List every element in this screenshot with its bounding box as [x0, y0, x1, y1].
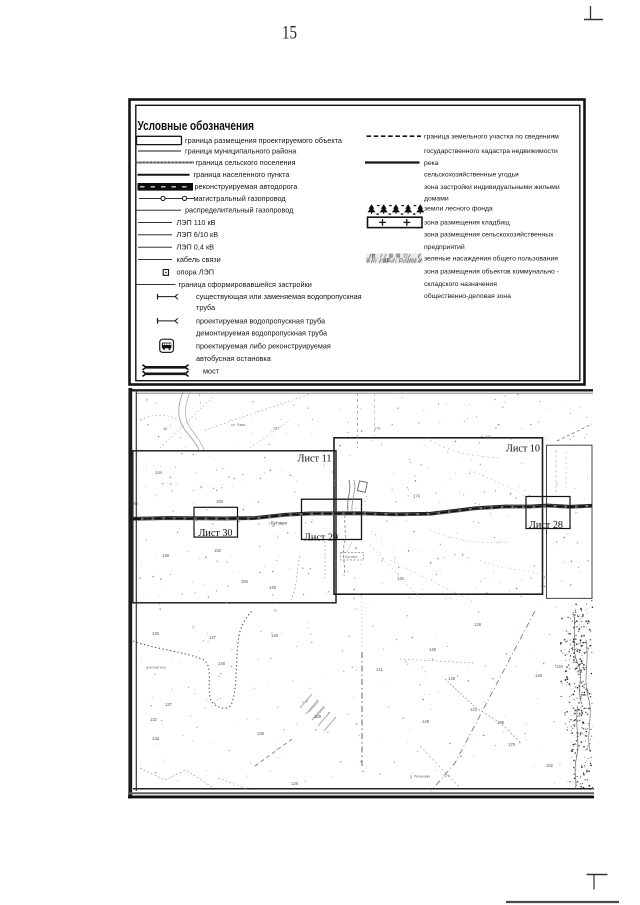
svg-text:зона размещения кладбищ: зона размещения кладбищ	[424, 219, 510, 227]
svg-text:176: 176	[374, 427, 380, 431]
svg-text:187: 187	[273, 427, 279, 431]
svg-text:автобусная остановка: автобусная остановка	[196, 354, 272, 363]
svg-text:147: 147	[209, 635, 217, 640]
svg-text:Лист 28: Лист 28	[529, 520, 563, 531]
svg-text:134: 134	[152, 736, 160, 741]
svg-text:150: 150	[241, 579, 249, 584]
svg-text:, ': , '	[584, 434, 587, 440]
svg-text:ЛЭП 110 кВ: ЛЭП 110 кВ	[177, 218, 216, 227]
svg-text:домами: домами	[424, 196, 449, 203]
svg-text:магистральный газопровод: магистральный газопровод	[194, 194, 287, 203]
svg-text:красный Бор: красный Бор	[146, 666, 166, 670]
svg-text:141: 141	[376, 667, 384, 672]
svg-text:зона застройки индивидуальными: зона застройки индивидуальными жилыми	[424, 183, 560, 191]
svg-text:граница населенного пункта: граница населенного пункта	[194, 170, 291, 179]
svg-text:зона размещения объектов комму: зона размещения объектов коммунально -	[424, 267, 559, 275]
svg-text:зона размещения сельскохозяйст: зона размещения сельскохозяйственных	[424, 231, 554, 239]
svg-text:15: 15	[282, 23, 297, 44]
svg-text:проектируемая либо реконструир: проектируемая либо реконструируемая	[196, 341, 331, 350]
svg-text:граница сформировавшейся застр: граница сформировавшейся застройки	[179, 280, 312, 289]
svg-text:144: 144	[470, 707, 478, 712]
svg-text:распределительный газопровод: распределительный газопровод	[185, 206, 294, 215]
svg-text:174: 174	[413, 494, 421, 499]
svg-text:137: 137	[165, 702, 173, 707]
svg-text:д. Ретиновка: д. Ретиновка	[410, 775, 430, 779]
svg-text:171: 171	[444, 774, 450, 778]
svg-text:река: река	[424, 160, 439, 167]
svg-text:128: 128	[314, 714, 322, 719]
svg-text:150: 150	[214, 548, 222, 553]
svg-text:142: 142	[397, 576, 405, 581]
svg-text:с.Бутовка: с.Бутовка	[343, 555, 357, 559]
svg-text:48: 48	[163, 427, 167, 431]
svg-text:опора ЛЭП: опора ЛЭП	[177, 267, 215, 276]
svg-text:132: 132	[150, 717, 158, 722]
svg-text:граница размещения проектируем: граница размещения проектируемого объект…	[185, 136, 343, 145]
svg-text:ЛЭП 6/10 кВ: ЛЭП 6/10 кВ	[177, 230, 219, 239]
svg-text:Лист 10: Лист 10	[506, 443, 540, 454]
svg-text:·⋮: ·⋮	[143, 464, 148, 469]
svg-text:158: 158	[485, 435, 491, 439]
svg-text:общественно-деловая зона: общественно-деловая зона	[424, 292, 511, 300]
svg-text:труба: труба	[196, 303, 216, 312]
svg-text:земли лесного фонда: земли лесного фонда	[424, 205, 493, 212]
svg-text:149: 149	[162, 553, 170, 558]
svg-text:143: 143	[142, 516, 150, 521]
svg-text:125: 125	[291, 781, 299, 786]
svg-text:государственного кадастра недв: государственного кадастра недвижимости	[424, 148, 558, 155]
svg-text:проектируемая водопропускная т: проектируемая водопропускная труба	[196, 316, 326, 325]
svg-text:граница земельного участка по: граница земельного участка по сведениям	[424, 134, 559, 141]
svg-text:реконструируемая автодорога: реконструируемая автодорога	[195, 182, 299, 191]
svg-text:146: 146	[535, 673, 543, 678]
svg-text:140: 140	[556, 664, 564, 669]
svg-text:граница муниципального района: граница муниципального района	[185, 146, 297, 155]
svg-text:ск. Рава: ск. Рава	[231, 423, 246, 427]
svg-text:существующая или заменяемая во: существующая или заменяемая водопропускн…	[196, 292, 362, 301]
svg-text:149: 149	[448, 676, 456, 681]
svg-text:146: 146	[218, 661, 226, 666]
svg-text:140: 140	[152, 631, 160, 636]
svg-text:182: 182	[546, 763, 554, 768]
svg-text:148: 148	[269, 585, 277, 590]
svg-text:157: 157	[193, 518, 199, 522]
svg-text:148: 148	[422, 719, 430, 724]
svg-text:мост: мост	[203, 366, 220, 375]
svg-text:178: 178	[508, 742, 516, 747]
svg-text:148: 148	[429, 647, 437, 652]
svg-text:Лист 30: Лист 30	[199, 528, 233, 539]
svg-text:Бутовая: Бутовая	[271, 521, 287, 526]
svg-text:145: 145	[131, 501, 139, 506]
svg-text:Лист 11: Лист 11	[298, 454, 332, 465]
svg-text:ЛЭП 0,4 кВ: ЛЭП 0,4 кВ	[177, 243, 215, 252]
svg-text:демонтируемая водопропускная т: демонтируемая водопропускная труба	[196, 329, 328, 338]
svg-text:138: 138	[257, 731, 265, 736]
svg-text:граница сельского поселения: граница сельского поселения	[196, 158, 296, 167]
svg-text:складского назначения: складского назначения	[424, 281, 497, 288]
svg-text:Условные обозначения: Условные обозначения	[138, 118, 255, 133]
svg-text:кабель связи: кабель связи	[177, 255, 221, 264]
svg-text:сельскохозяйственные угодья: сельскохозяйственные угодья	[424, 170, 519, 178]
svg-text:зеленые насаждения общего поль: зеленые насаждения общего пользования	[424, 255, 558, 263]
svg-text:Лист 29: Лист 29	[304, 533, 338, 544]
svg-text:предприятий: предприятий	[424, 243, 465, 251]
svg-text:139: 139	[497, 720, 505, 725]
svg-text:150: 150	[216, 499, 224, 504]
svg-text:138: 138	[474, 622, 482, 627]
svg-text:148: 148	[271, 633, 279, 638]
